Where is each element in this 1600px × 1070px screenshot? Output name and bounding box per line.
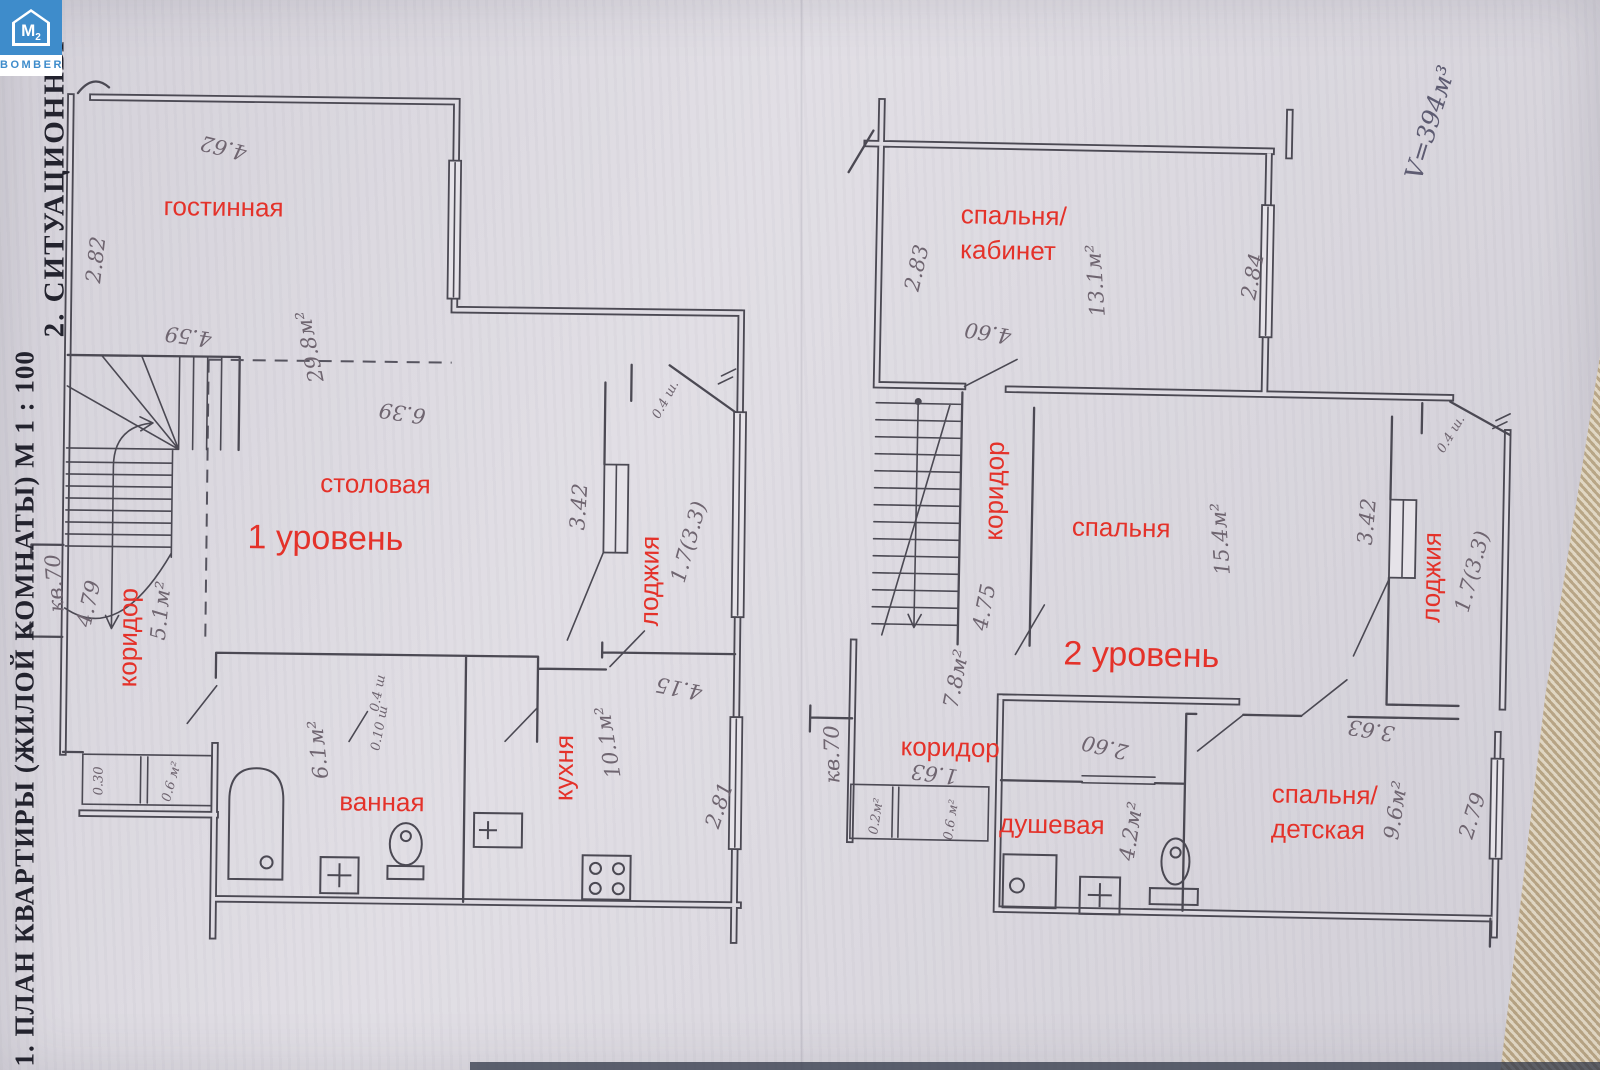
level2-fixtures <box>1002 835 1198 916</box>
logo-sup: 2 <box>35 33 41 43</box>
room-label-hall: коридор <box>900 733 1000 761</box>
room-label-bedroom: спальня <box>1072 514 1171 542</box>
m2bomber-logo-brand: BOMBER <box>0 55 62 76</box>
level2-plan: спальня/ кабинет коридор спальня 2 урове… <box>0 0 1600 1070</box>
dim-loggia-len-2: 3.42 <box>1355 497 1380 545</box>
room-label-bedroom-kids-line2: детская <box>1271 815 1365 843</box>
dim-office-width: 4.60 <box>963 318 1012 346</box>
dim-bedroom-area: 15.4м² <box>1208 502 1234 576</box>
room-label-bedroom-office-line2: кабинет <box>960 236 1056 264</box>
dim-kids-top: 3.63 <box>1347 716 1396 744</box>
m2bomber-logo: М2 BOMBER <box>0 0 62 76</box>
dim-apt-no-2: кв.70 <box>822 725 844 783</box>
floorplan-photo: гостинная столовая 1 уровень коридор ван… <box>0 0 1600 1070</box>
dim-office-area: 13.1м² <box>1083 243 1109 317</box>
dim-hall-width: 1.63 <box>910 760 959 787</box>
m2bomber-logo-house-icon: М2 <box>0 0 62 55</box>
room-label-shower: душевая <box>999 810 1105 838</box>
photo-edge-shadow <box>470 1062 1600 1070</box>
room-label-bedroom-kids-line1: спальня/ <box>1272 780 1378 808</box>
room-label-loggia-2: лоджия <box>1417 532 1445 623</box>
level2-stairs <box>872 397 963 636</box>
margin-caption-situation: 2. СИТУАЦИОННЫ <box>39 29 72 349</box>
logo-m: М <box>21 19 35 43</box>
toilet-2 <box>1161 838 1190 885</box>
margin-caption-plan: 1. ПЛАН КВАРТИРЫ (ЖИЛОЙ КОМНАТЫ) М 1 : 1… <box>10 377 41 1067</box>
room-label-corridor-2: коридор <box>980 441 1008 541</box>
level2-title: 2 уровень <box>1063 636 1219 673</box>
room-label-bedroom-office-line1: спальня/ <box>961 201 1067 229</box>
